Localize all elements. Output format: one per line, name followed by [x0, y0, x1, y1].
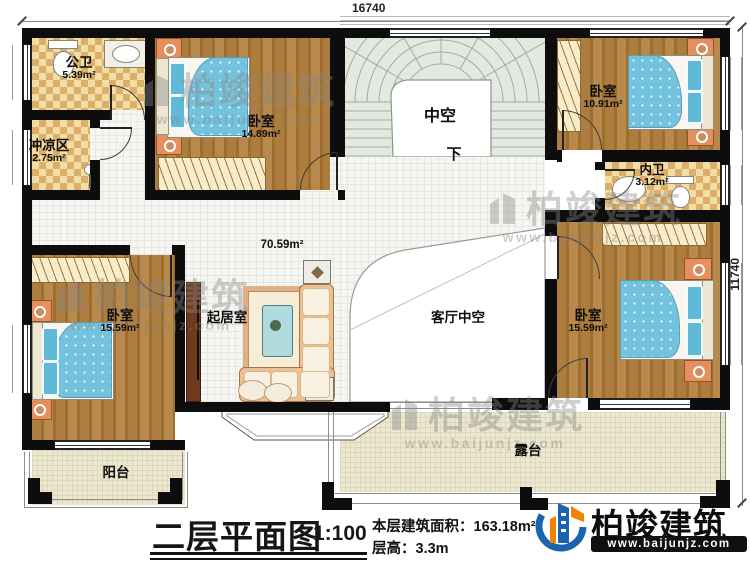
- wall-segment: [22, 28, 32, 45]
- window: [720, 165, 730, 205]
- watermark-text: 柏竣建筑: [526, 191, 682, 228]
- dimension-line-top: [22, 21, 730, 22]
- ottoman: [238, 380, 267, 401]
- watermark-logo-icon: [484, 190, 522, 228]
- stair-direction-label: 下: [441, 147, 467, 164]
- room-label-sitting-room: 起居室: [198, 310, 256, 325]
- door-leaf: [110, 85, 112, 120]
- window: [590, 28, 703, 38]
- room-area: 10.91m²: [573, 99, 633, 111]
- room-name: 客厅中空: [424, 310, 492, 325]
- floor-plan-sheet: 16740 11740: [0, 0, 750, 567]
- room-label-bedroom-bottom-left: 卧室 15.59m²: [88, 308, 152, 335]
- wall-segment: [720, 28, 730, 57]
- room-label-living-void: 客厅中空: [424, 310, 492, 325]
- room-label-terrace: 露台: [500, 443, 556, 458]
- wall-segment: [22, 245, 130, 255]
- room-name: 卧室: [573, 84, 633, 99]
- pillar: [28, 492, 52, 504]
- title-underline-thin: [150, 558, 367, 560]
- room-name: 起居室: [198, 310, 256, 325]
- nightstand: [156, 38, 182, 59]
- wall-segment: [22, 110, 110, 120]
- window-sill: [730, 57, 742, 130]
- wall-segment: [185, 402, 390, 412]
- wall-segment: [150, 440, 185, 450]
- room-name: 内卫: [624, 163, 680, 177]
- window: [720, 57, 730, 130]
- room-label-bedroom-bottom-right: 卧室 15.59m²: [556, 308, 620, 335]
- side-table-lamp: [303, 260, 331, 284]
- pillow: [686, 91, 703, 124]
- plan-title: 二层平面图: [152, 510, 322, 558]
- floor-area-note: 本层建筑面积：163.18m²: [372, 516, 536, 538]
- room-area: 15.59m²: [88, 323, 152, 335]
- room-name: 卧室: [231, 114, 291, 129]
- door-leaf: [586, 358, 588, 398]
- sofa-cushion: [302, 317, 330, 345]
- dimension-top: 16740: [352, 1, 385, 15]
- sofa-cushion: [302, 288, 330, 316]
- room-name: 中空: [408, 108, 472, 126]
- watermark-logo-icon: [386, 396, 424, 434]
- room-label-bedroom-top-right: 卧室 10.91m²: [573, 84, 633, 111]
- brand-logo-icon: [533, 497, 587, 553]
- room-area: 14.89m²: [231, 129, 291, 141]
- plant-icon: [270, 320, 281, 331]
- room-area: 70.59m²: [254, 239, 310, 252]
- open-area-label: 70.59m²: [254, 239, 310, 252]
- watermark: 柏竣建筑 www.baijunjz.com: [484, 190, 682, 245]
- wall-segment: [338, 190, 345, 200]
- wall-segment: [490, 28, 590, 38]
- window: [390, 28, 490, 38]
- watermark-url: www.baijunjz.com: [484, 229, 682, 245]
- room-label-public-bath: 公卫 5.39m²: [50, 55, 108, 82]
- room-name: 卧室: [556, 308, 620, 323]
- wall-segment: [545, 28, 557, 160]
- wall-segment: [595, 162, 605, 170]
- ottoman: [264, 383, 292, 403]
- floor-height-note: 层高：3.3m: [372, 538, 536, 560]
- stair-down-text: 下: [441, 147, 467, 164]
- wall-segment: [22, 440, 55, 450]
- room-label-ensuite-bath: 内卫 3.12m²: [624, 163, 680, 189]
- sofa-cushion: [300, 371, 330, 398]
- room-name: 露台: [500, 443, 556, 458]
- plan-notes: 本层建筑面积：163.18m² 层高：3.3m: [372, 516, 536, 561]
- wall-segment: [22, 185, 32, 325]
- room-label-shower: 冲凉区 2.75m²: [20, 138, 78, 165]
- room-area: 15.59m²: [556, 323, 620, 335]
- nightstand: [684, 360, 712, 382]
- wall-segment: [145, 190, 300, 200]
- title-underline: [150, 552, 367, 555]
- wall-segment: [90, 120, 100, 128]
- window: [600, 398, 690, 410]
- pillow: [686, 59, 703, 92]
- room-name: 卧室: [88, 308, 152, 323]
- sofa-cushion: [302, 346, 330, 374]
- pillow: [686, 321, 703, 357]
- sink-icon: [112, 45, 140, 63]
- room-label-bedroom-top-left: 卧室 14.89m²: [231, 114, 291, 141]
- plan-scale: 1:100: [313, 522, 367, 546]
- room-area: 2.75m²: [20, 153, 78, 165]
- room-area: 3.12m²: [624, 177, 680, 189]
- pillow: [686, 285, 703, 321]
- bed-headboard: [702, 280, 714, 360]
- wardrobe: [158, 157, 266, 191]
- coffee-table: [262, 305, 293, 357]
- wall-segment: [720, 130, 730, 165]
- shower-stem: [89, 175, 91, 188]
- window: [55, 440, 150, 450]
- dimension-right: 11740: [728, 258, 742, 291]
- room-label-balcony: 阳台: [88, 465, 144, 480]
- room-name: 阳台: [88, 465, 144, 480]
- door-leaf: [336, 152, 338, 190]
- wall-segment: [690, 398, 730, 410]
- watermark-text: 柏竣建筑: [428, 397, 584, 434]
- brand-url: www.baijunjz.com: [591, 536, 747, 552]
- room-label-stair-void: 中空: [408, 108, 472, 126]
- watermark-text: 柏竣建筑: [180, 73, 336, 110]
- window: [22, 325, 32, 393]
- wall-segment: [588, 398, 600, 410]
- room-name: 公卫: [50, 55, 108, 70]
- nightstand: [684, 258, 712, 280]
- watermark-logo-icon: [52, 278, 90, 316]
- pillar: [322, 498, 352, 510]
- door-leaf: [562, 110, 564, 150]
- toilet-tank-icon: [48, 40, 78, 49]
- room-area: 5.39m²: [50, 70, 108, 82]
- pillar: [158, 492, 182, 504]
- window-sill: [730, 165, 742, 205]
- dimension-line-right: [742, 28, 743, 506]
- window: [22, 45, 32, 100]
- wall-segment: [602, 150, 720, 162]
- pillow: [42, 361, 59, 396]
- staircase: [345, 38, 545, 157]
- room-name: 冲凉区: [20, 138, 78, 153]
- wall-segment: [22, 190, 100, 200]
- door-leaf: [100, 127, 132, 129]
- watermark-logo-icon: [138, 72, 176, 110]
- wall-segment: [557, 150, 562, 162]
